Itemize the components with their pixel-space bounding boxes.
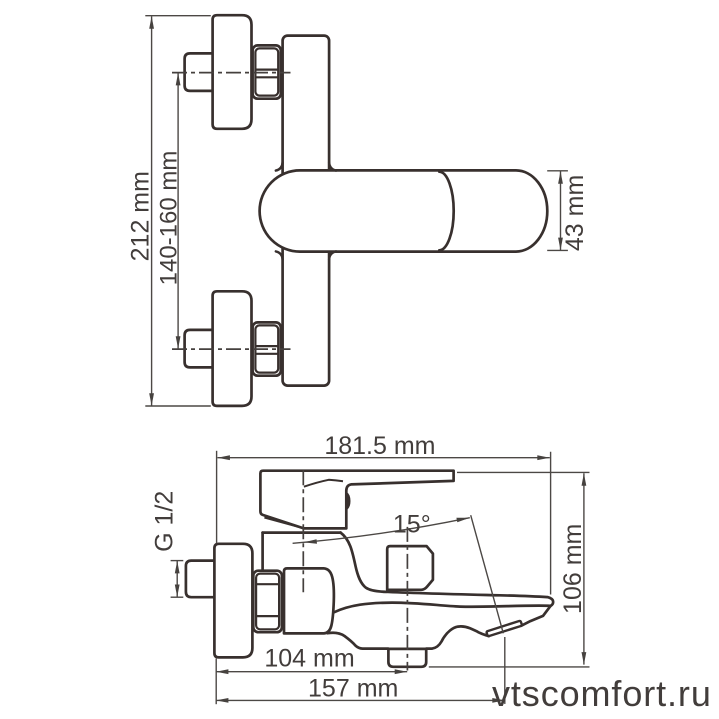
svg-text:157 mm: 157 mm bbox=[308, 675, 398, 703]
svg-text:G 1/2: G 1/2 bbox=[151, 491, 179, 552]
svg-text:43 mm: 43 mm bbox=[561, 175, 589, 251]
svg-text:140-160 mm: 140-160 mm bbox=[155, 151, 182, 286]
svg-text:vtscomfort.ru: vtscomfort.ru bbox=[492, 673, 712, 714]
svg-text:212 mm: 212 mm bbox=[127, 171, 155, 261]
svg-text:106 mm: 106 mm bbox=[559, 524, 587, 614]
svg-text:15°: 15° bbox=[393, 511, 431, 539]
svg-text:104 mm: 104 mm bbox=[264, 645, 354, 673]
svg-text:181.5 mm: 181.5 mm bbox=[324, 432, 435, 460]
